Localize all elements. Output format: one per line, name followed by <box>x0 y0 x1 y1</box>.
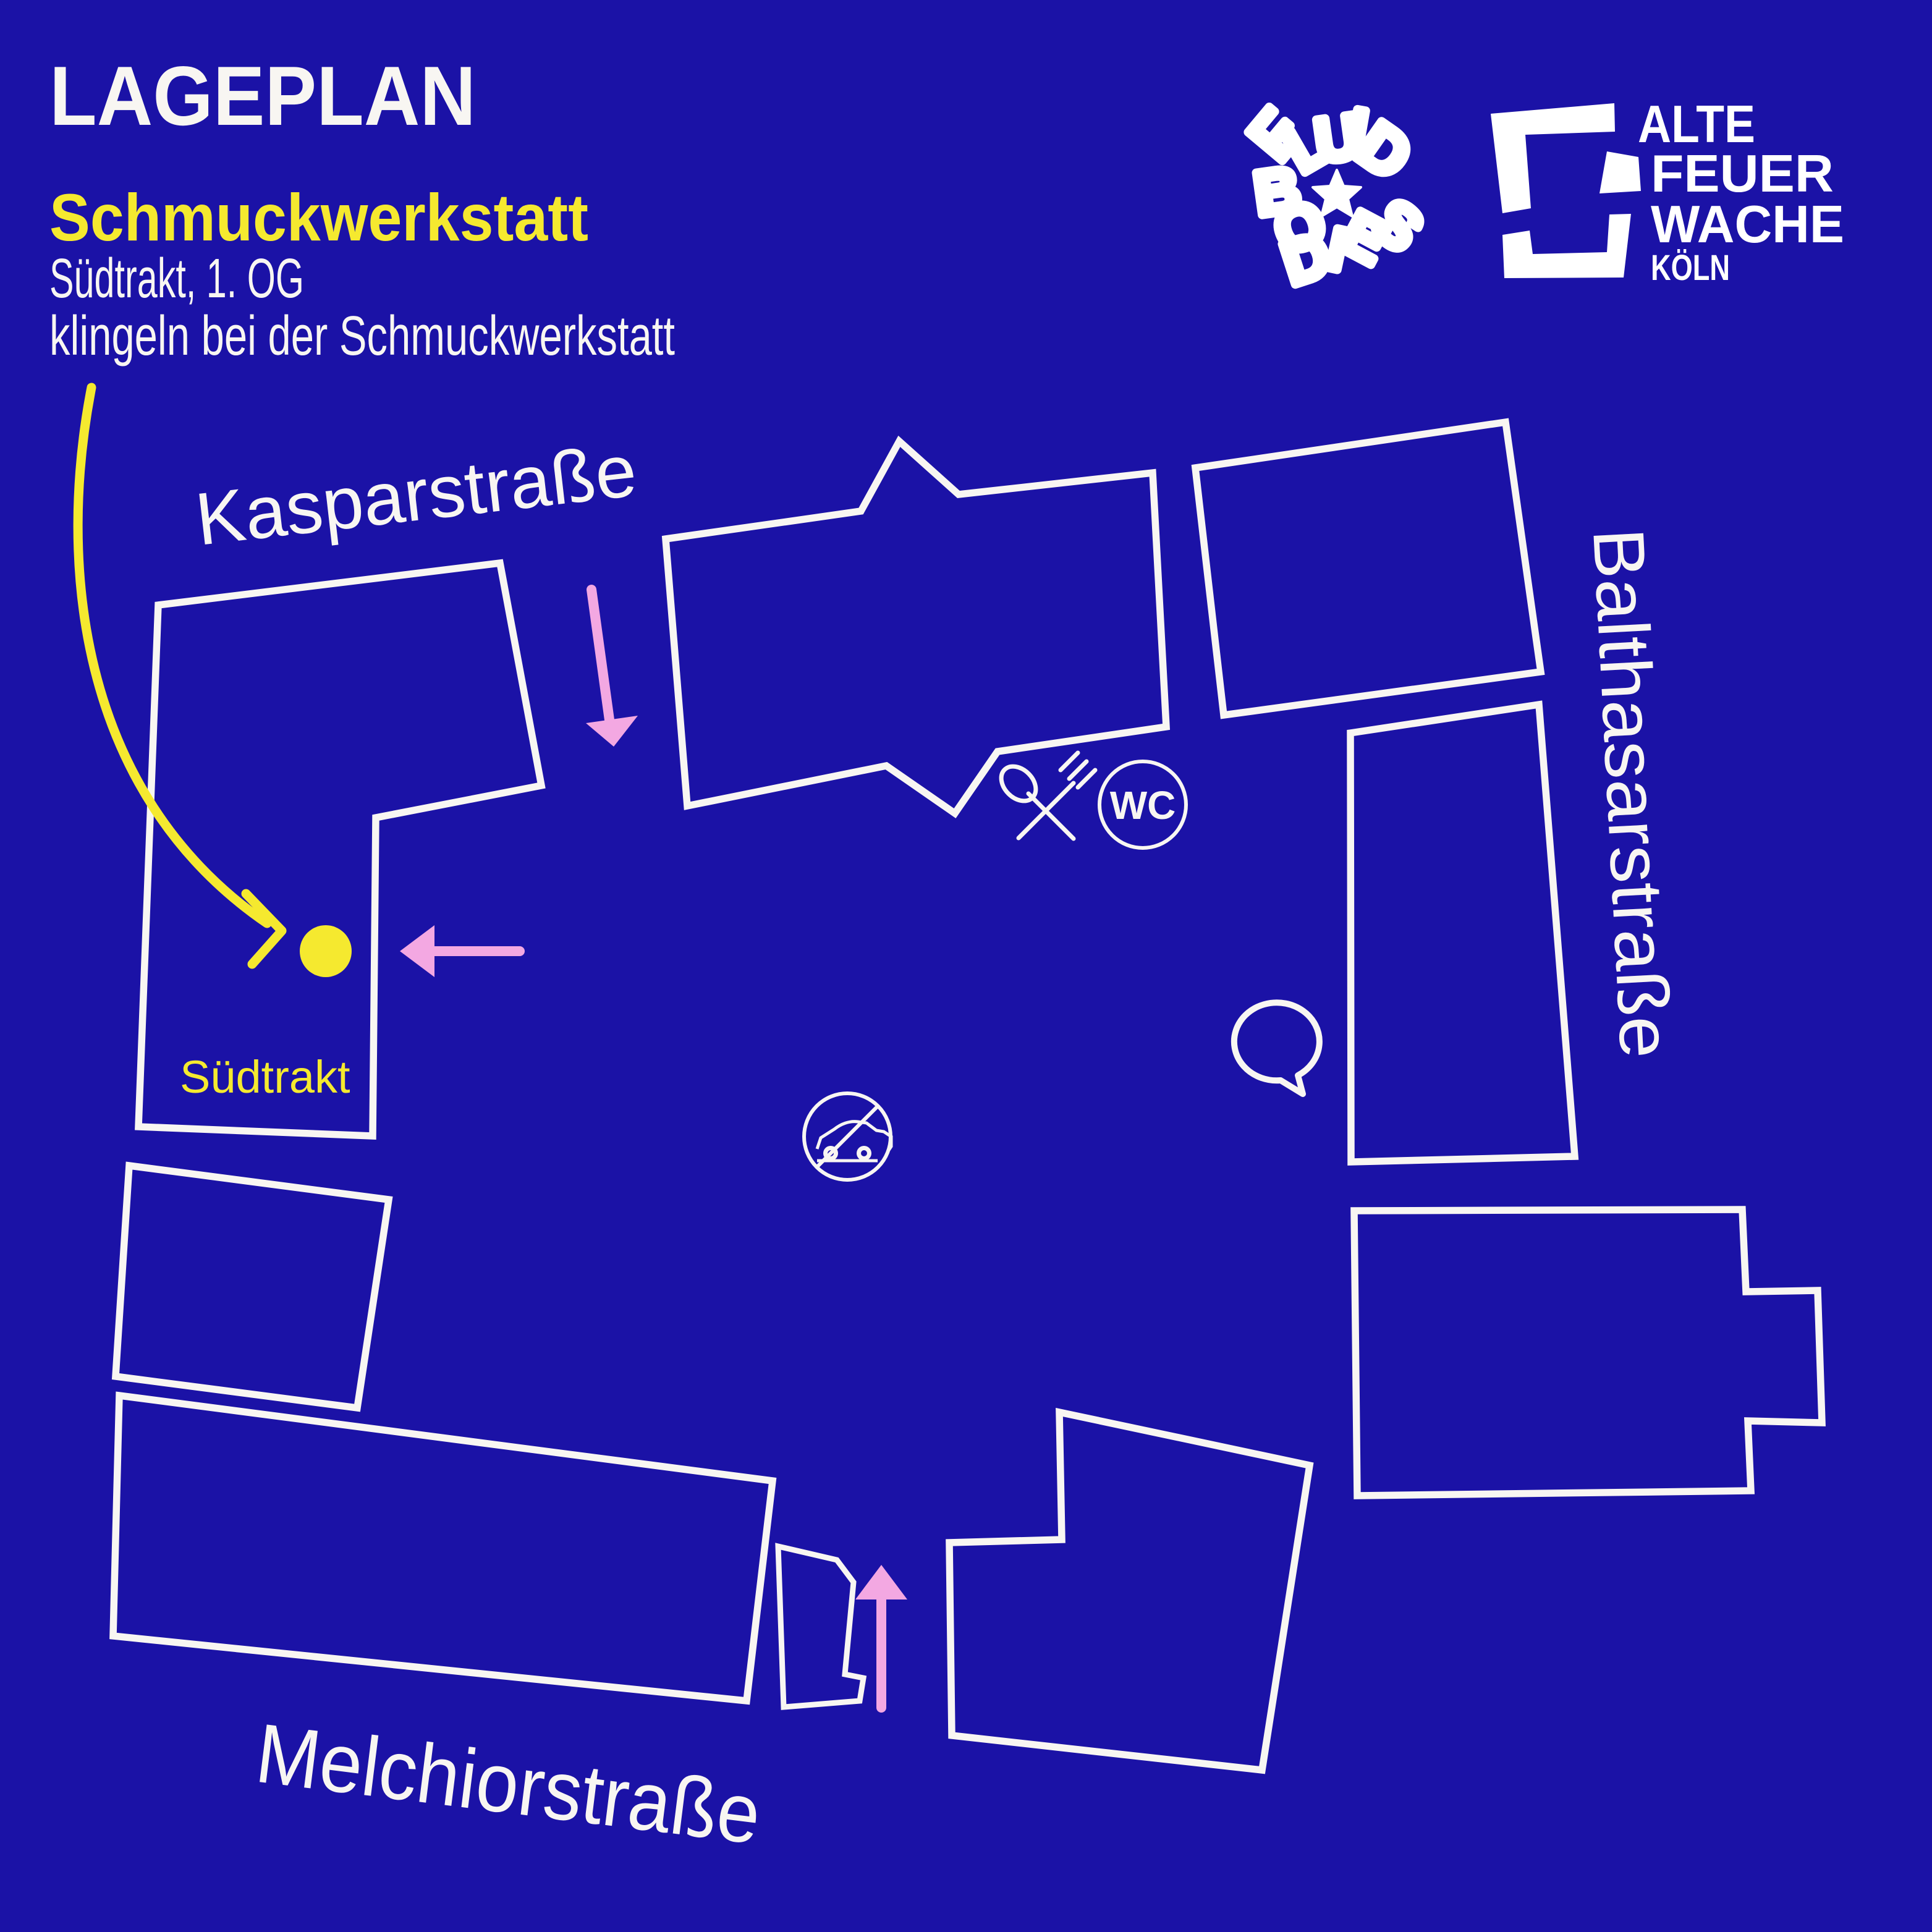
svg-text:WACHE: WACHE <box>1651 195 1844 254</box>
svg-text:LAGEPLAN: LAGEPLAN <box>49 49 476 143</box>
svg-text:Schmuckwerkstatt: Schmuckwerkstatt <box>49 180 588 255</box>
svg-text:Südtrakt, 1. OG: Südtrakt, 1. OG <box>49 248 304 310</box>
svg-text:WC: WC <box>1110 783 1176 828</box>
svg-text:Südtrakt: Südtrakt <box>180 1051 350 1103</box>
svg-text:KÖLN: KÖLN <box>1651 248 1730 288</box>
svg-text:FEUER: FEUER <box>1651 145 1834 203</box>
svg-text:klingeln bei der Schmuckwerkst: klingeln bei der Schmuckwerkstatt <box>49 305 675 367</box>
